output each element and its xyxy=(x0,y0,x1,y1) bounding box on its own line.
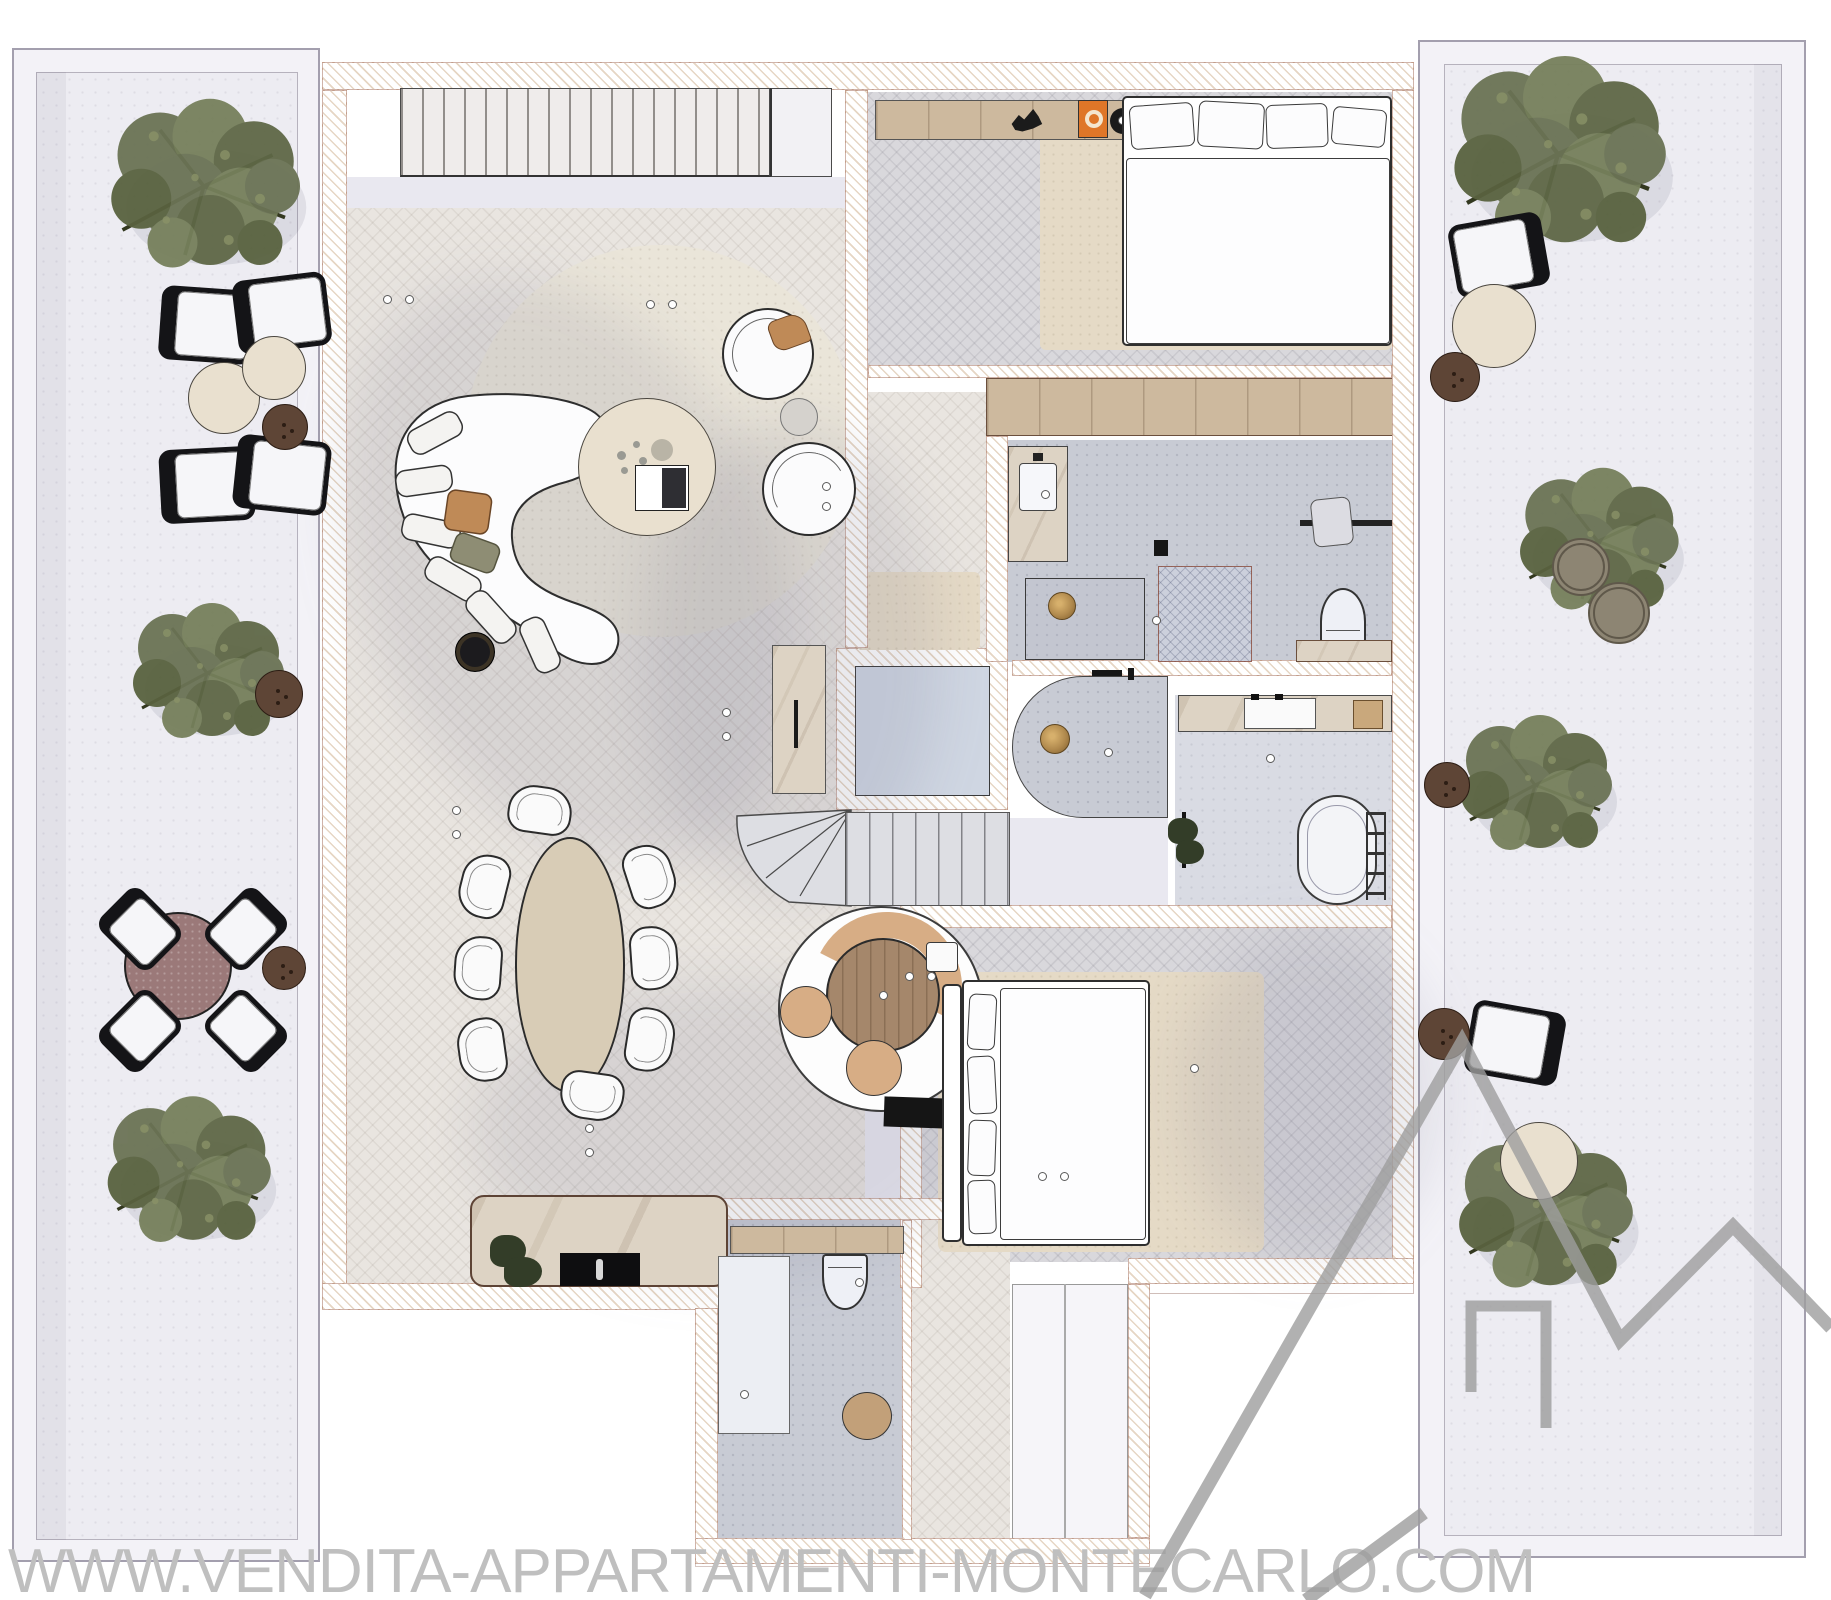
floor-plan: WWW.VENDITA-APPARTAMENTI-MONTECARLO.COM xyxy=(0,0,1831,1600)
agency-logo-layer xyxy=(0,0,1831,1600)
house-roofline-logo-icon xyxy=(1145,1042,1831,1600)
